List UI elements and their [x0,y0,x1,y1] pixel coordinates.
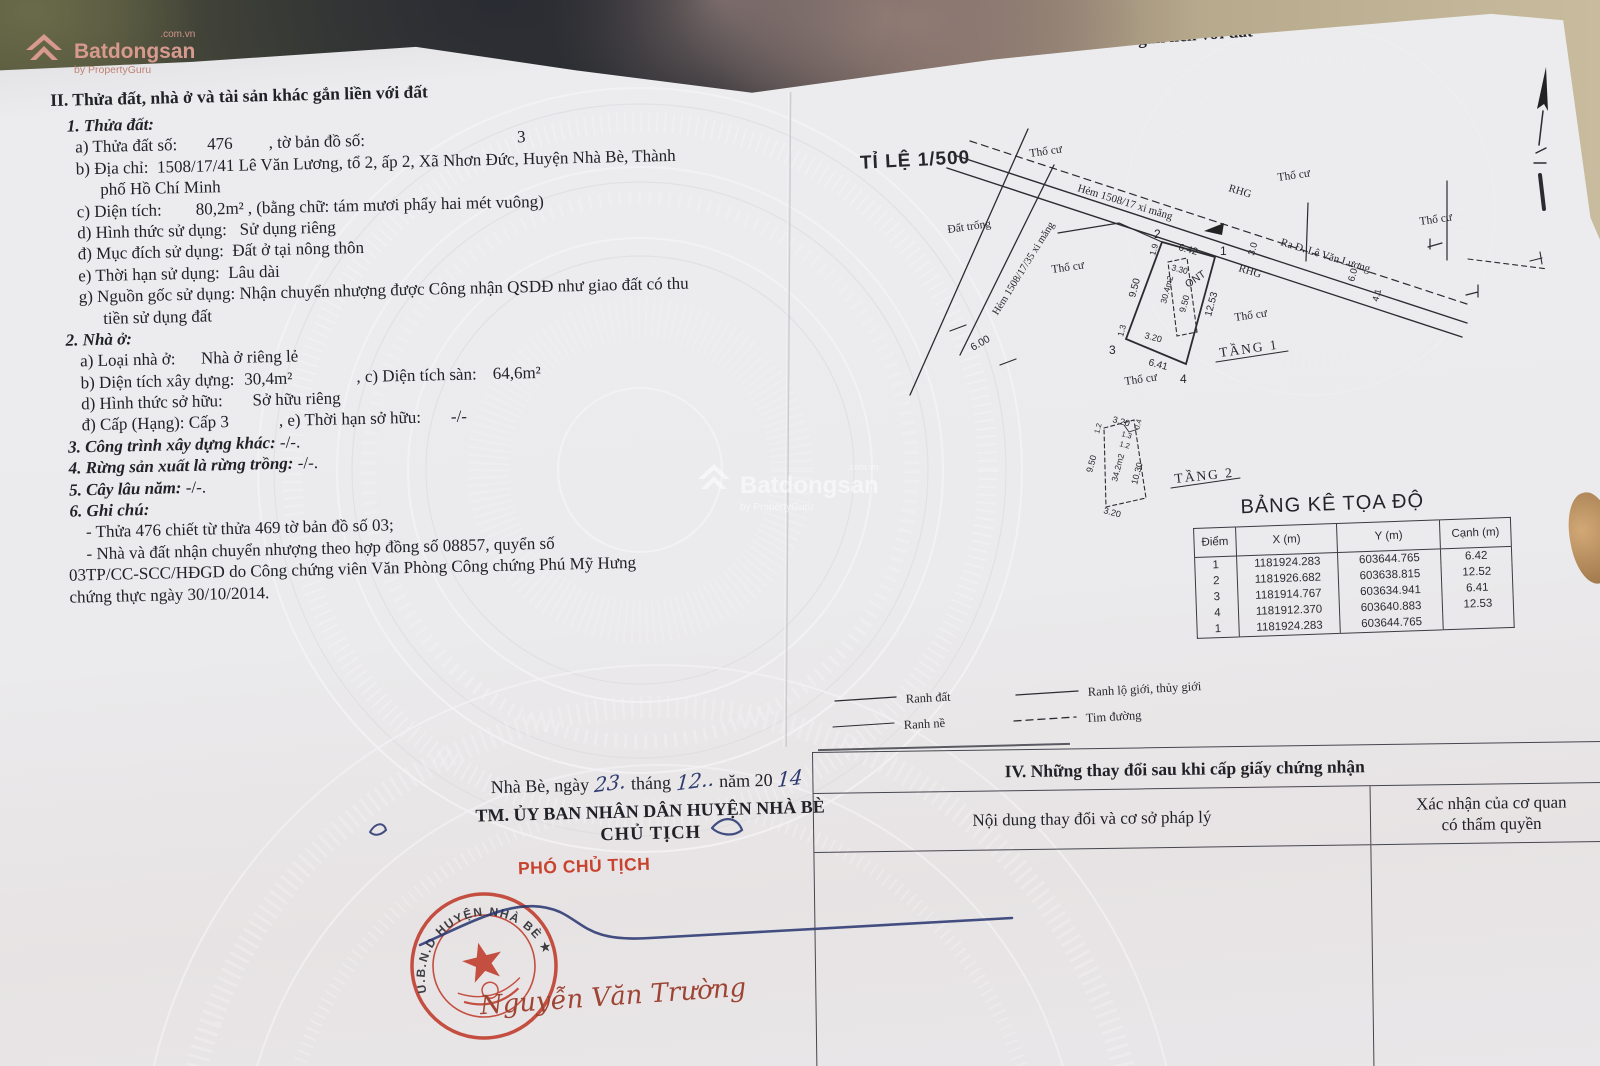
rhg-label-2: RHG [1237,262,1263,280]
photo-of-land-certificate: .com.vn Batdongsan by PropertyGuru II. T… [0,0,1600,1066]
col-header-diem: Điểm [1194,527,1237,557]
tho-cu-label-3: Thổ cư [1419,210,1454,228]
rhg-label-1: RHG [1227,182,1253,200]
legend-ranh-dat: Ranh đất [905,690,951,706]
corner-3: 3 [1109,343,1116,357]
legend-line-ranh-lo-gioi [1016,691,1078,695]
legend-tim-duong: Tim đường [1085,708,1142,725]
dim-t2-n4: 1.2 [1118,439,1130,450]
dim-house-bottom: 3.20 [1143,330,1163,344]
legend-line-tim-duong [1014,717,1076,721]
legend-ranh-ne: Ranh nề [903,716,945,732]
coordinate-table-block: BẢNG KÊ TỌA ĐỘ Điểm X (m) Y (m) Cạnh (m)… [1192,487,1517,639]
col-header-x: X (m) [1235,523,1337,556]
dim-t2-bottom: 3.20 [1102,505,1122,519]
dim-house-right: 9.50 [1177,294,1191,314]
handwritten-month: 12.. [675,766,715,795]
section-iv-table: IV. Những thay đổi sau khi cấp giấy chứn… [812,741,1600,1066]
col-header-y: Y (m) [1337,520,1441,553]
dim-t2-n3: 0.4 [1132,418,1143,430]
iv-col1-header: Nội dung thay đổi và cơ sở pháp lý [814,786,1371,853]
iv-col2-body [1371,842,1600,1066]
dim-road-4-1: 4.1 [1370,288,1383,303]
house-logo-icon [22,30,66,70]
handwritten-year: 14 [777,764,804,792]
col-header-canh: Cạnh (m) [1440,517,1512,548]
tho-cu-label-4: Thổ cư [1051,258,1086,276]
dim-t2-left: 9.50 [1084,454,1098,474]
dim-t2-top: 3.20 [1111,414,1131,428]
dim-left: 9.50 [1127,277,1143,299]
iv-col2-header: Xác nhận của cơ quancó thẩm quyền [1371,783,1600,845]
logo-byline: by PropertyGuru [74,65,195,76]
t2-area: 34.2m2 [1109,452,1126,482]
pen-flourish-left [370,824,386,835]
dim-left-bot: 1.3 [1115,323,1128,337]
dim-house-top: 3.30 [1170,262,1189,276]
side-road-edge-1 [910,129,1028,395]
road-label-hem35: Hẻm 1508/17/35 xi măng [991,219,1058,317]
corner-2: 2 [1154,227,1161,241]
dim-6-00: 6.00 [969,333,993,354]
tho-cu-label-5: Thổ cư [1234,306,1269,324]
corner-4: 4 [1180,372,1187,386]
dim-t2-n1: 1.2 [1092,422,1103,434]
iv-col1-body [814,845,1373,1066]
dim-right: 12.53 [1203,290,1220,317]
dat-trong-label: Đất trống [947,217,992,236]
handwritten-day: 23. [593,769,626,798]
batdongsan-logo: .com.vn Batdongsan by PropertyGuru [22,30,195,76]
legend-line-ranh-ne [833,723,894,727]
legend-line-ranh-dat [835,697,896,701]
certificate-page: .com.vn Batdongsan by PropertyGuru II. T… [0,0,1600,1066]
pen-flourish-right [712,819,742,834]
direction-arrow-icon [1204,223,1224,235]
side-road-edge-2 [960,165,1054,355]
dim-bottom: 6.41 [1147,357,1169,373]
cadastral-diagram: Hẻm 1508/17 xi măng RHG Ra Đ. Lê Văn Lươ… [830,55,1600,755]
road-label-hem17: Hẻm 1508/17 xi măng [1076,182,1174,222]
page-fold-crease [784,92,792,747]
road-label-levanluong: Ra Đ. Lê Văn Lương [1279,236,1372,275]
date-line: Nhà Bè, ngày23.tháng12..năm 2014 [419,764,879,800]
corner-1: 1 [1220,244,1227,258]
tho-cu-label-2: Thổ cư [1277,166,1312,184]
parcel-outline [1126,242,1215,364]
tho-cu-label-6: Thổ cư [1124,370,1159,388]
dim-road-6-0: 6.0 [1346,267,1360,283]
legend-ranh-lo-gioi: Ranh lộ giới, thủy giới [1087,679,1202,699]
section-ii: II. Thửa đất, nhà ở và tài sản khác gắn … [50,74,782,609]
north-arrow-icon [1537,67,1548,111]
tho-cu-label-1: Thổ cư [1029,142,1064,160]
tang2-label: TẦNG 2 [1174,465,1235,486]
logo-name: Batdongsan [74,41,195,62]
coordinate-table: Điểm X (m) Y (m) Cạnh (m) 11181924.28360… [1193,517,1515,639]
logo-tld: .com.vn [74,30,195,40]
dim-top: 6.42 [1177,242,1199,258]
